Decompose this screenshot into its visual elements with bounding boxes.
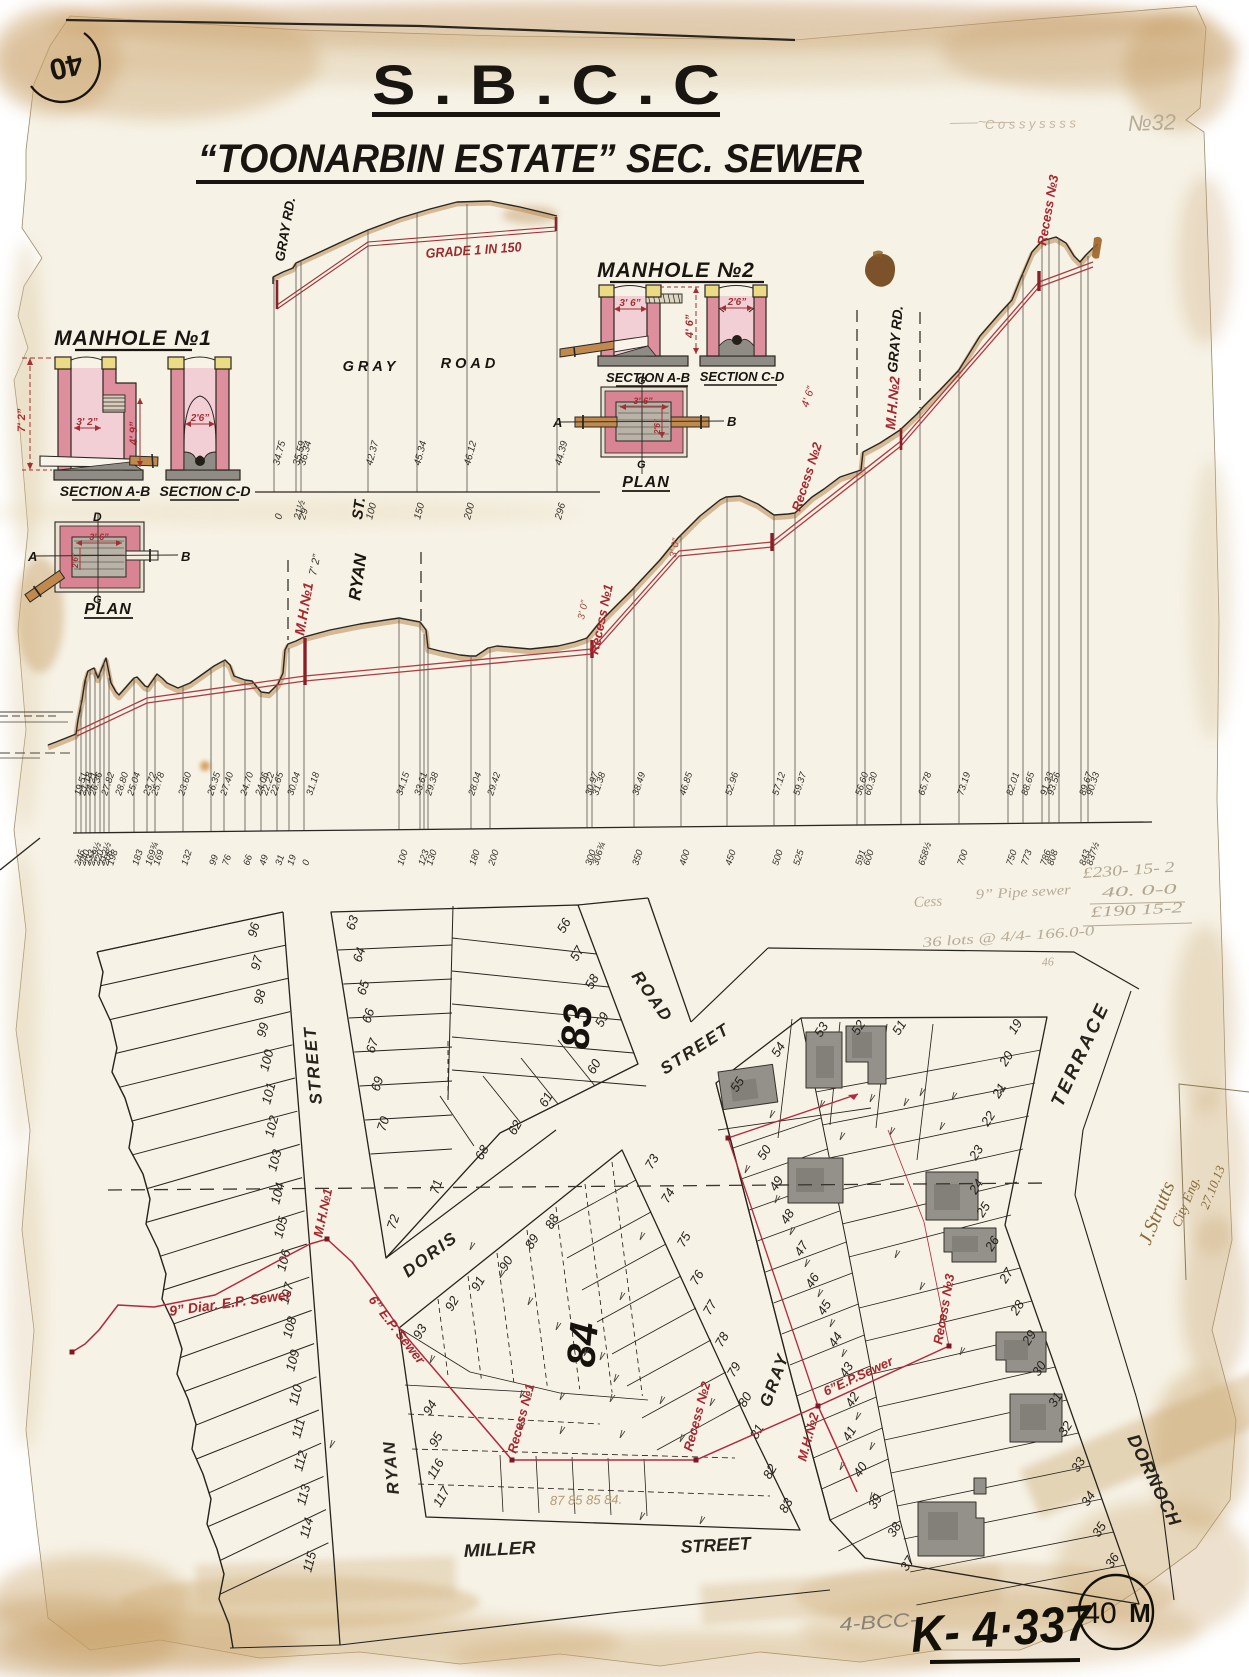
svg-text:D: D bbox=[93, 510, 102, 524]
svg-text:G: G bbox=[637, 375, 646, 387]
svg-text:Cess: Cess bbox=[913, 894, 942, 911]
svg-text:G: G bbox=[637, 459, 646, 471]
svg-text:4' 9”: 4' 9” bbox=[128, 421, 140, 446]
svg-text:SECTION C-D: SECTION C-D bbox=[700, 369, 785, 384]
svg-text:87 85 85 84.: 87 85 85 84. bbox=[550, 1492, 623, 1508]
svg-text:MANHOLE №1: MANHOLE №1 bbox=[54, 327, 212, 350]
svg-text:MILLER: MILLER bbox=[463, 1537, 536, 1561]
svg-text:PLAN: PLAN bbox=[622, 474, 670, 491]
svg-text:2'6”: 2'6” bbox=[653, 419, 662, 435]
svg-text:2'6”: 2'6” bbox=[71, 553, 80, 569]
svg-text:PLAN: PLAN bbox=[84, 601, 132, 618]
svg-text:2'6”: 2'6” bbox=[190, 413, 210, 424]
svg-text:GRAY: GRAY bbox=[343, 359, 400, 375]
svg-text:3' 6”: 3' 6” bbox=[619, 298, 640, 309]
svg-text:MANHOLE №2: MANHOLE №2 bbox=[597, 259, 755, 282]
svg-text:46: 46 bbox=[1041, 954, 1054, 969]
svg-text:S . B . C . C: S . B . C . C bbox=[372, 53, 720, 116]
svg-text:№32: №32 bbox=[1127, 109, 1176, 136]
svg-text:STREET: STREET bbox=[680, 1533, 753, 1557]
svg-text:2'6”: 2'6” bbox=[727, 297, 747, 308]
svg-text:3' 6”: 3' 6” bbox=[89, 532, 109, 542]
svg-text:B: B bbox=[181, 549, 190, 564]
svg-text:A: A bbox=[27, 549, 37, 564]
svg-text:M: M bbox=[1129, 1598, 1151, 1628]
svg-text:4' 6”: 4' 6” bbox=[684, 314, 696, 339]
svg-text:83: 83 bbox=[553, 1003, 601, 1051]
svg-text:B: B bbox=[727, 414, 736, 429]
svg-text:3' 6”: 3' 6” bbox=[633, 396, 653, 406]
svg-text:ST.: ST. bbox=[349, 496, 369, 520]
svg-text:3' 2”: 3' 2” bbox=[76, 417, 97, 428]
svg-text:SECTION C-D: SECTION C-D bbox=[160, 483, 251, 499]
svg-text:SECTION A-B: SECTION A-B bbox=[60, 483, 150, 499]
svg-text:SECTION A-B: SECTION A-B bbox=[606, 370, 690, 385]
svg-text:84: 84 bbox=[559, 1321, 607, 1369]
svg-text:7' 2”: 7' 2” bbox=[16, 408, 28, 432]
svg-text:40: 40 bbox=[1083, 1597, 1116, 1630]
svg-text:“TOONARBIN ESTATE” SEC. SEWER: “TOONARBIN ESTATE” SEC. SEWER bbox=[198, 137, 862, 181]
svg-text:C o s s y s s s s: C o s s y s s s s bbox=[985, 115, 1077, 132]
svg-text:ROAD: ROAD bbox=[441, 356, 500, 372]
